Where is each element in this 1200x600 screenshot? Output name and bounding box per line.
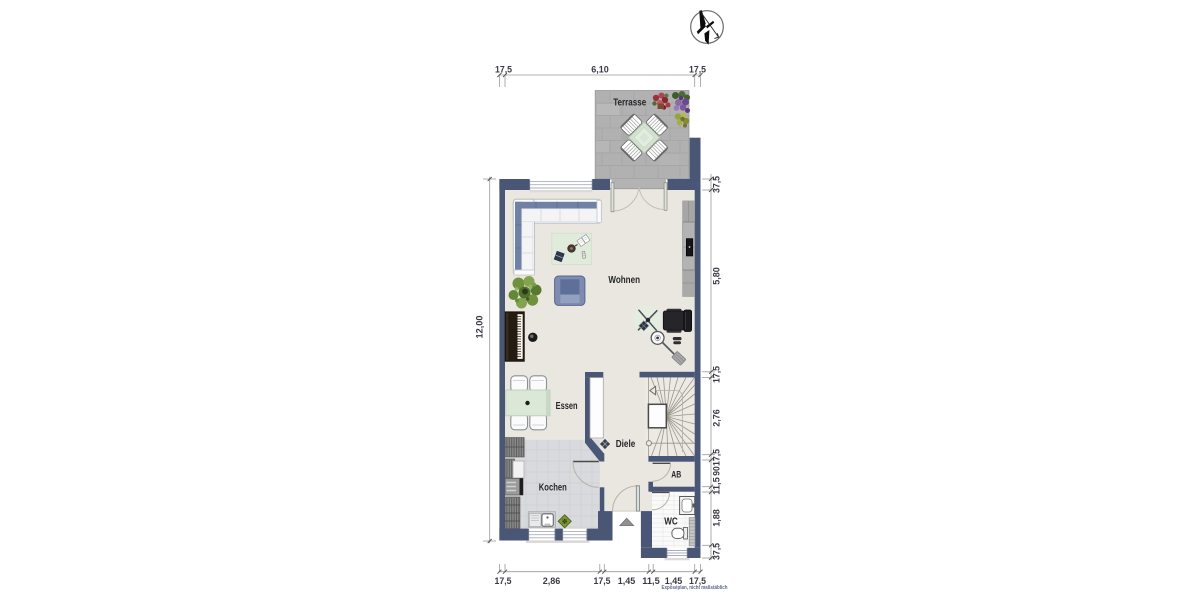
svg-text:17,5: 17,5 (712, 366, 722, 383)
svg-text:1,88: 1,88 (712, 509, 722, 527)
svg-text:5,80: 5,80 (712, 267, 722, 285)
svg-text:2,76: 2,76 (712, 409, 722, 427)
svg-text:Diele: Diele (616, 439, 636, 450)
svg-text:37,5: 37,5 (712, 176, 722, 193)
svg-text:11,5: 11,5 (712, 477, 722, 495)
svg-text:Exposéplan, nicht maßstäblich: Exposéplan, nicht maßstäblich (662, 585, 728, 591)
svg-text:2,86: 2,86 (543, 576, 561, 586)
svg-text:17,5: 17,5 (594, 576, 611, 586)
svg-text:1,45: 1,45 (618, 576, 636, 586)
svg-text:WC: WC (664, 515, 678, 527)
svg-text:17,5: 17,5 (495, 576, 512, 586)
svg-text:17,5: 17,5 (712, 449, 722, 466)
svg-text:AB: AB (671, 469, 681, 479)
svg-text:Wohnen: Wohnen (608, 275, 640, 286)
svg-text:17,5: 17,5 (495, 65, 512, 75)
svg-text:37,5: 37,5 (712, 543, 722, 560)
svg-text:90: 90 (712, 466, 722, 476)
svg-text:11,5: 11,5 (642, 576, 660, 586)
svg-text:Essen: Essen (556, 401, 578, 412)
svg-text:Kochen: Kochen (539, 483, 567, 494)
svg-text:12,00: 12,00 (475, 316, 485, 339)
svg-text:6,10: 6,10 (591, 65, 609, 75)
svg-text:Terrasse: Terrasse (613, 98, 646, 109)
svg-text:17,5: 17,5 (689, 65, 706, 75)
